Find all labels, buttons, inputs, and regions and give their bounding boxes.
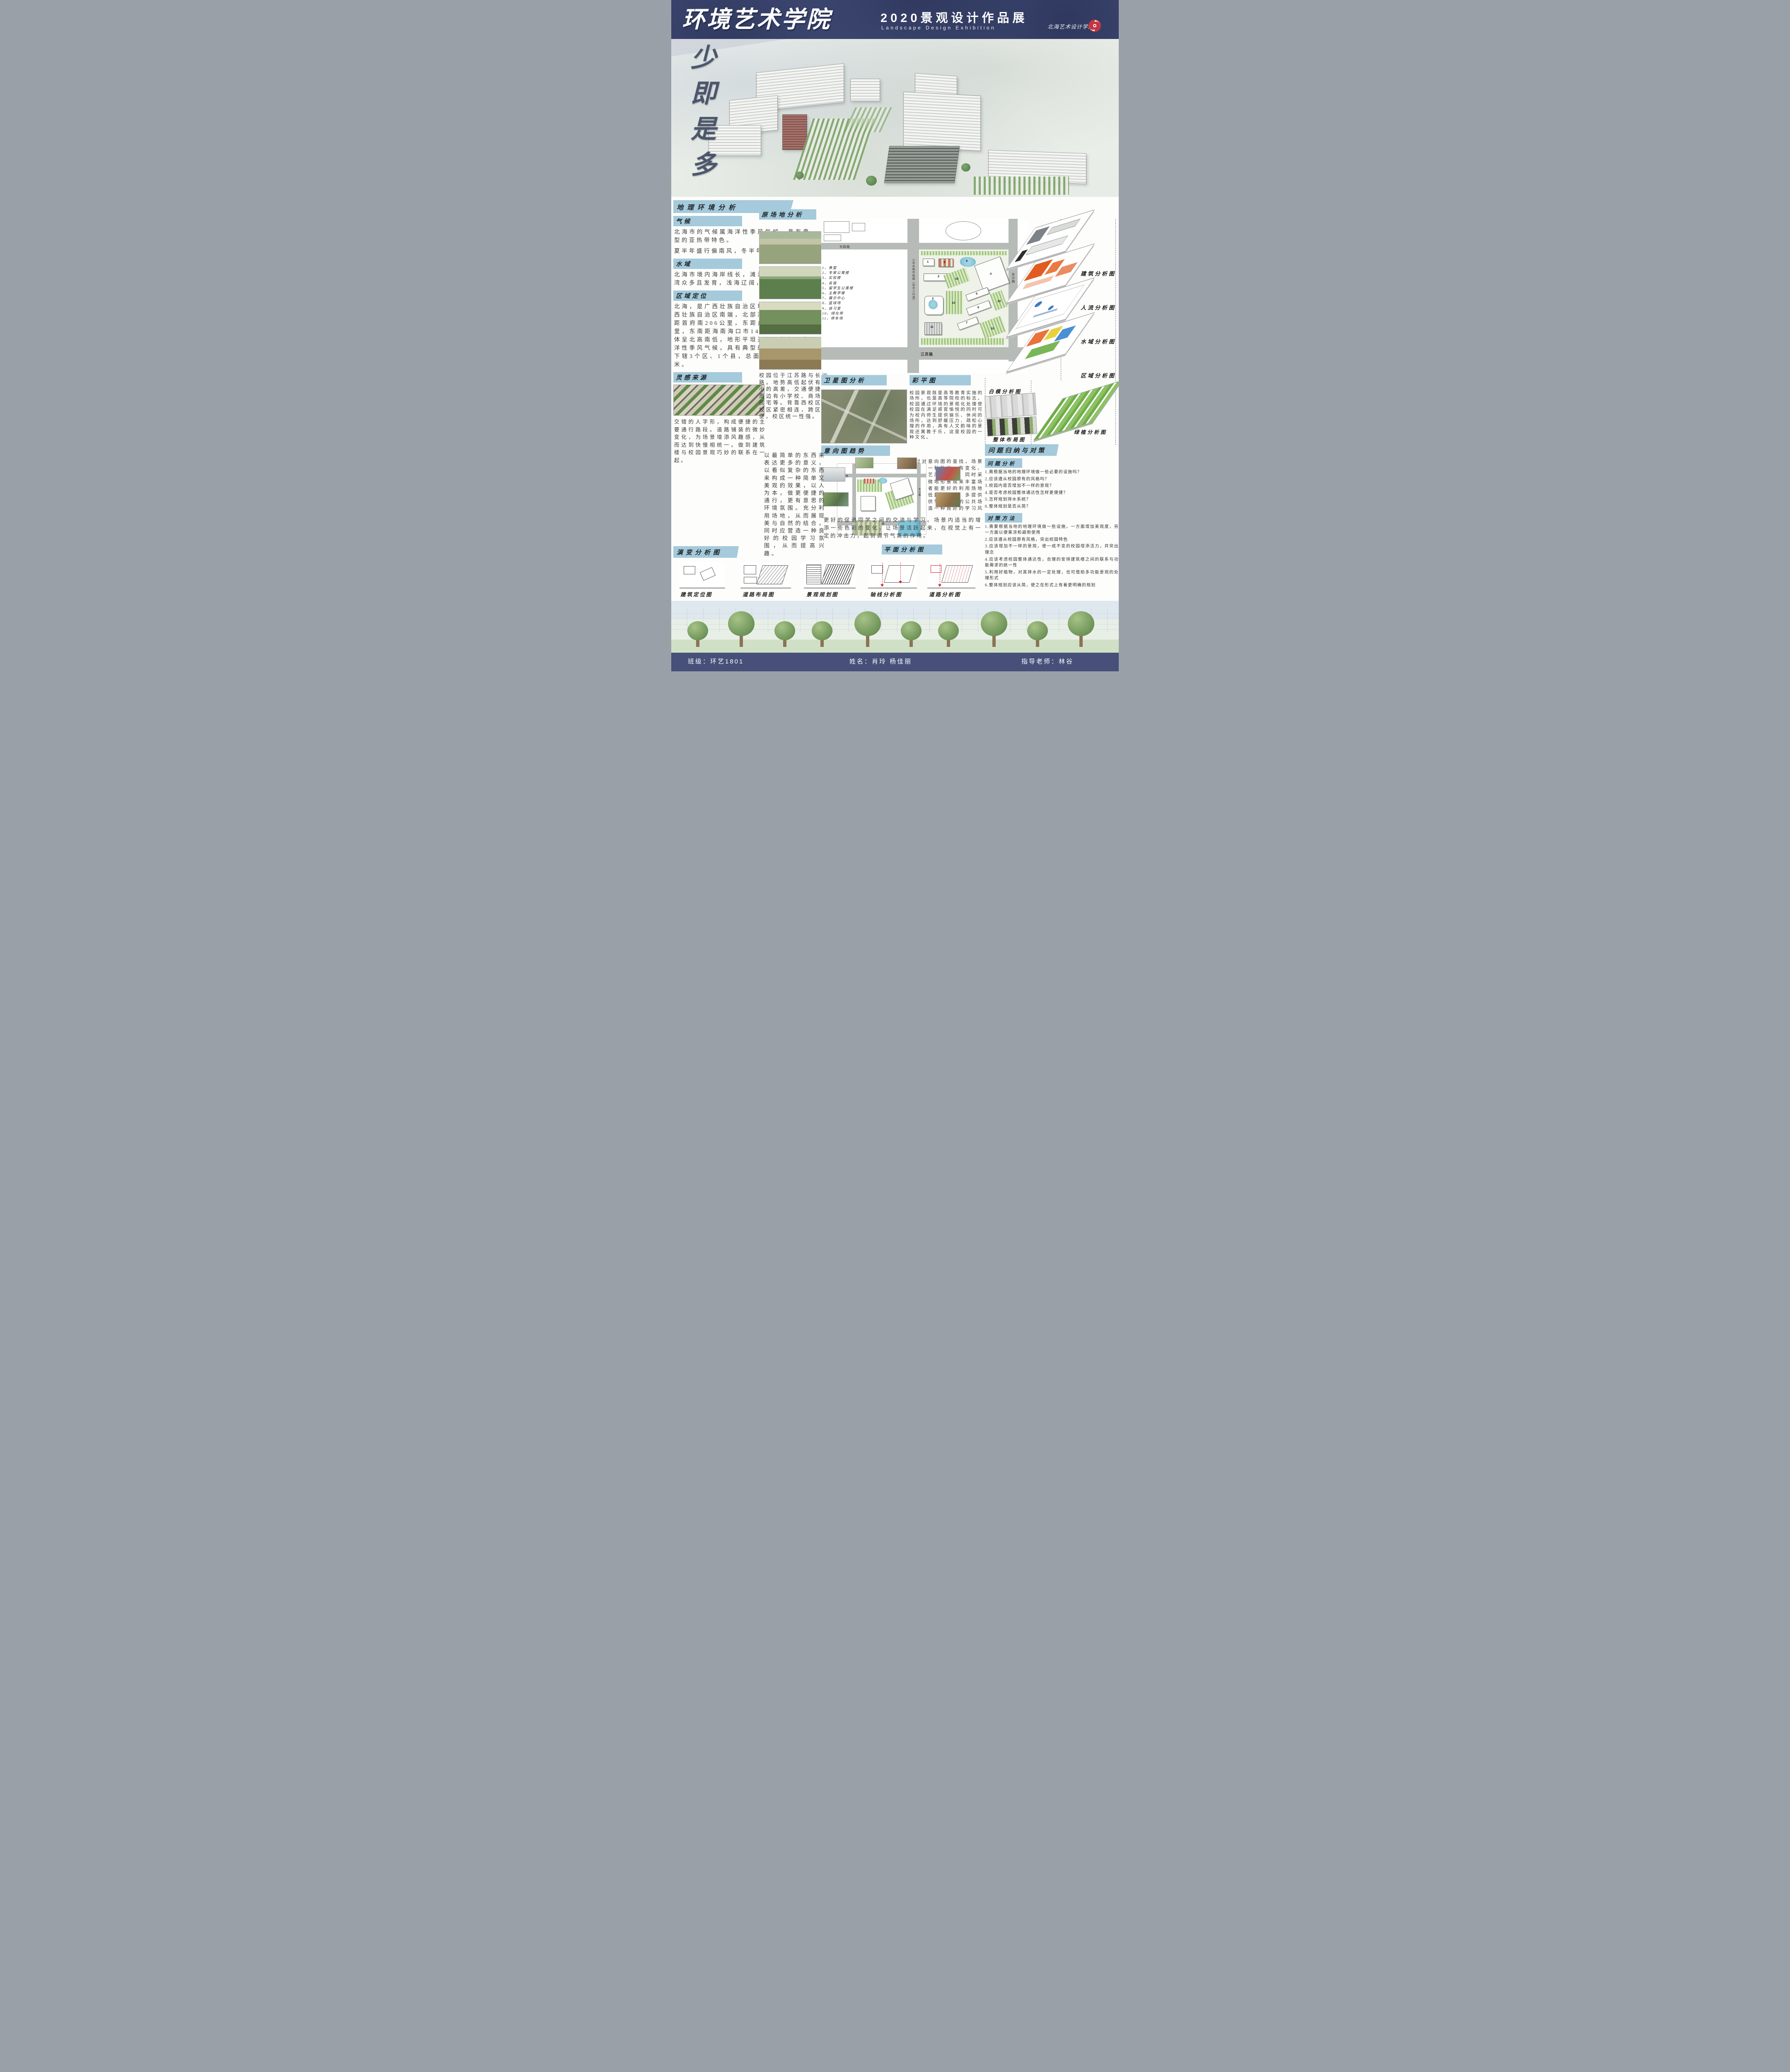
section-title-site: 原场地分析 bbox=[759, 209, 816, 220]
intent-photo bbox=[897, 457, 917, 469]
plan-legend: 1、食堂 2、专家公寓楼 3、实验楼 4、名宿 5、留学生公寓楼 6、主教学楼 … bbox=[822, 265, 888, 321]
slogan-vertical: 少即是多 bbox=[682, 44, 719, 193]
section-title-inspiration: 灵感来源 bbox=[673, 372, 742, 382]
label-water-analysis: 水域分析图 bbox=[1081, 337, 1116, 345]
map-number: 3 bbox=[932, 297, 934, 300]
label-overall-layout: 整体布局图 bbox=[993, 436, 1026, 443]
footer-bar: 班级：环艺1801 姓名：肖玲 杨佳丽 指导老师：林谷 bbox=[671, 653, 1119, 671]
intent-heading-wrap: 意向图趋势 bbox=[821, 445, 890, 456]
footer-names: 姓名：肖玲 杨佳丽 bbox=[849, 657, 912, 666]
tree-icon bbox=[947, 636, 950, 647]
tree-icon bbox=[866, 633, 869, 647]
green-belt bbox=[921, 251, 1006, 255]
context-building-outline bbox=[824, 235, 841, 241]
mini-pond bbox=[879, 478, 887, 484]
plan-building-7 bbox=[957, 317, 979, 330]
label-green-analysis: 绿植分析图 bbox=[1074, 428, 1107, 436]
plan-pool bbox=[929, 300, 938, 309]
colorplan-paragraph: 校园景观既是高等教育实施的场所，也是高等院校的标志。校园通过环境的景观化处理使校… bbox=[910, 390, 983, 441]
road-bottom-label: 江苏路 bbox=[921, 351, 933, 357]
legend-item: 6、主教学楼 bbox=[822, 290, 888, 295]
tree-icon bbox=[910, 636, 913, 647]
site-caption: 校园位于江苏路与长沙路。地势高低起伏有较小的高差，交通便捷，周边有小学校、商场、… bbox=[759, 372, 829, 420]
tree-icon bbox=[783, 636, 786, 647]
legend-item: 10、绿化带 bbox=[822, 311, 888, 316]
subsection-climate: 气候 bbox=[673, 216, 742, 226]
white-model-thumb bbox=[984, 393, 1036, 419]
problem-item: 3.校园内是否增加不一样的景观？ bbox=[985, 483, 1119, 489]
caption-landscape-plan: 景观规划图 bbox=[806, 590, 839, 598]
mini-road-right-label: 长沙路 bbox=[917, 488, 921, 496]
plan-pond bbox=[960, 257, 976, 267]
problem-item: 5.怎样规划排水系统？ bbox=[985, 497, 1119, 503]
map-number: 10 bbox=[955, 277, 958, 281]
exhibition-subtitle-en: Landscape Design Exhibition bbox=[881, 25, 996, 31]
map-number: 1 bbox=[927, 260, 929, 264]
green-belt bbox=[921, 338, 1004, 345]
intent-photo bbox=[936, 492, 960, 507]
footer-advisor: 指导老师：林谷 bbox=[1021, 657, 1074, 666]
section-title-intent: 意向图趋势 bbox=[821, 445, 890, 456]
tree-icon bbox=[961, 163, 970, 172]
map-number: 5 bbox=[976, 292, 977, 295]
strategy-item: 3.应该增加不一样的景观，使一成不变的校园增添活力，并突出理念 bbox=[985, 544, 1119, 556]
tree-icon bbox=[1079, 633, 1083, 647]
context-building-outline bbox=[824, 221, 849, 233]
caption-road-layout: 道路布局图 bbox=[743, 590, 775, 598]
thumb-landscape-plan bbox=[804, 562, 856, 588]
road-right-label: 长沙路 bbox=[1011, 273, 1016, 283]
satellite-image bbox=[821, 390, 907, 443]
lawn-strips bbox=[844, 107, 893, 132]
tree-icon bbox=[866, 176, 877, 186]
school-logo-icon bbox=[1088, 19, 1101, 32]
site-analysis-column: 原场地分析 校园位于江苏路与长沙路。地势高低起伏有较小的高差，交通便捷，周边有小… bbox=[759, 209, 829, 420]
intent-photo bbox=[823, 492, 849, 506]
caption-building-position: 建筑定位图 bbox=[680, 590, 713, 598]
evolution-heading-wrap: 演变分析图 bbox=[673, 546, 739, 558]
label-flow-analysis: 人流分析图 bbox=[1081, 303, 1116, 311]
map-number: 8 bbox=[943, 260, 945, 264]
tree-icon bbox=[820, 636, 824, 647]
plan-parking bbox=[924, 322, 942, 335]
building-shape bbox=[903, 92, 981, 151]
section-title-satellite: 卫星图分析 bbox=[821, 375, 887, 385]
mini-building bbox=[861, 496, 876, 511]
tree-icon bbox=[992, 633, 996, 647]
road-top-label: 市政路 bbox=[839, 244, 850, 249]
inspiration-caption: 交错的人字形，构成便捷的主要通行路段。道路铺装的微妙变化，为场景增添风趣感，从而… bbox=[674, 418, 766, 464]
thumb-building-position bbox=[680, 562, 725, 588]
problem-item: 2.应该遵从校园原有的风格吗？ bbox=[985, 477, 1119, 483]
subsection-region: 区域定位 bbox=[673, 290, 742, 301]
section-title-plan-analysis: 平面分析图 bbox=[882, 545, 942, 554]
poster: 环境艺术学院 2020景观设计作品展 Landscape Design Exhi… bbox=[671, 0, 1119, 671]
mini-courts bbox=[864, 479, 875, 484]
section-title-evolution: 演变分析图 bbox=[673, 546, 739, 558]
thumb-road-layout bbox=[740, 562, 791, 588]
satellite-heading-wrap: 卫星图分析 bbox=[821, 375, 887, 385]
lawn-strips bbox=[974, 177, 1069, 195]
dashed-separator bbox=[1115, 219, 1116, 445]
caption-road-analysis: 道路分析图 bbox=[929, 590, 961, 598]
plan-building-4 bbox=[974, 257, 1009, 292]
campus-area: 1 8 9 4 2 10 5 3 10 6 10 7 11 bbox=[919, 249, 1009, 347]
context-building-outline bbox=[852, 223, 865, 231]
legend-item: 3、实验楼 bbox=[822, 275, 888, 280]
label-building-analysis: 建筑分析图 bbox=[1081, 269, 1116, 277]
strategy-item: 1.需要根据当地的地理环境做一些设施，一方面增加美观度，另一方面以便乘凉和避雨使… bbox=[985, 524, 1119, 536]
map-number: 10 bbox=[952, 301, 955, 305]
legend-item: 11、停车场 bbox=[822, 316, 888, 321]
strategy-item: 4.应该考虑校园整体通达性，合理的安排建筑楼之间的联系与功能需求的统一性 bbox=[985, 557, 1119, 569]
building-shape-dark bbox=[884, 146, 960, 183]
strategy-item: 6.整体规划应该从简，使之在形式上有着更明确的规划 bbox=[985, 583, 1119, 589]
legend-item: 7、展示中心 bbox=[822, 295, 888, 300]
building-shape-red bbox=[782, 114, 807, 150]
building-shape bbox=[850, 79, 880, 101]
problem-item: 1.需根据当地的地理环境做一些必要的设施吗？ bbox=[985, 470, 1119, 476]
road-left-label: 小学东侧市政路（包含人行道） bbox=[911, 259, 915, 346]
thumb-road-analysis bbox=[927, 562, 975, 588]
overall-layout-thumb bbox=[987, 416, 1037, 436]
site-photo-3 bbox=[759, 302, 830, 334]
legend-item: 8、篮球场 bbox=[822, 300, 888, 305]
tree-icon bbox=[1036, 636, 1039, 647]
tree-icon bbox=[796, 172, 804, 179]
map-number: 9 bbox=[966, 259, 968, 263]
map-number: 4 bbox=[990, 272, 992, 276]
school-name: 北海艺术设计学院 bbox=[1047, 22, 1094, 30]
site-photo-2 bbox=[759, 266, 830, 299]
map-number: 11 bbox=[930, 325, 934, 329]
map-number: 2 bbox=[938, 274, 939, 278]
strategy-item: 2.应该遵从校园原有风格，突出校园特色 bbox=[985, 537, 1119, 543]
legend-item: 1、食堂 bbox=[822, 265, 888, 270]
caption-axis-analysis: 轴线分析图 bbox=[870, 590, 902, 598]
thumb-axis-analysis bbox=[868, 562, 917, 588]
problem-item: 6.整体规划是否从简？ bbox=[985, 504, 1119, 510]
campus-birdview-rendering: 少即是多 bbox=[671, 39, 1119, 197]
strategy-item: 5.利用好植物，对其排水的一定处理，也可借助多功能景观的处理形式 bbox=[985, 570, 1119, 582]
intent-photo bbox=[855, 457, 873, 468]
stadium-track-outline bbox=[946, 221, 981, 240]
site-photo-1 bbox=[759, 231, 830, 264]
exhibition-subtitle: 2020景观设计作品展 bbox=[880, 8, 1028, 26]
footer-class: 班级：环艺1801 bbox=[688, 657, 744, 666]
subsection-strategy: 对策方法 bbox=[985, 513, 1022, 523]
subsection-water: 水域 bbox=[673, 259, 742, 269]
problem-item: 4.是否考虑校园整体通达性怎样更便捷？ bbox=[985, 490, 1119, 496]
label-region-analysis: 区域分析图 bbox=[1081, 371, 1116, 379]
legend-item: 9、自习室 bbox=[822, 306, 888, 311]
watercolor-tree-strip bbox=[671, 601, 1119, 653]
legend-item: 5、留学生公寓楼 bbox=[822, 286, 888, 290]
inspiration-photo bbox=[673, 385, 764, 416]
concept-paragraph: 以最简单的东西来表达更多的意义，以看似复杂的东西来构成一种简单又美观的效果，以人… bbox=[764, 452, 826, 557]
header-bar: 环境艺术学院 2020景观设计作品展 Landscape Design Exhi… bbox=[671, 0, 1119, 39]
legend-item: 4、名宿 bbox=[822, 281, 888, 286]
subsection-problem-analysis: 问题分析 bbox=[985, 458, 1022, 468]
section-title-colorplan: 彩平图 bbox=[910, 375, 971, 385]
section-title-problems: 问题归纳与对策 bbox=[985, 444, 1059, 456]
intent-photo bbox=[936, 467, 960, 481]
page-title: 环境艺术学院 bbox=[682, 1, 831, 34]
tree-icon bbox=[696, 636, 699, 647]
mini-road-top bbox=[837, 474, 926, 477]
plananalysis-heading-wrap: 平面分析图 bbox=[882, 545, 942, 554]
plan-basketball-courts bbox=[939, 259, 953, 267]
map-number: 10 bbox=[997, 299, 1001, 303]
map-number: 6 bbox=[977, 305, 979, 309]
intent-caption: 更好的促进同学之间的交流与学习。场景内适当的增添一些色彩的变化，让场景活跃起来，… bbox=[824, 516, 982, 540]
map-number: 10 bbox=[991, 327, 994, 330]
legend-item: 2、专家公寓楼 bbox=[822, 270, 888, 275]
master-plan: 市政路 小学东侧市政路（包含人行道） 长沙路 江苏路 1 8 9 4 2 10 … bbox=[821, 219, 1028, 373]
tree-icon bbox=[740, 633, 743, 647]
site-photo-4 bbox=[759, 337, 830, 370]
colorplan-heading-wrap: 彩平图 bbox=[910, 375, 971, 385]
map-number: 7 bbox=[966, 321, 968, 324]
problems-column: 问题归纳与对策 问题分析 1.需根据当地的地理环境做一些必要的设施吗？ 2.应该… bbox=[985, 444, 1119, 590]
